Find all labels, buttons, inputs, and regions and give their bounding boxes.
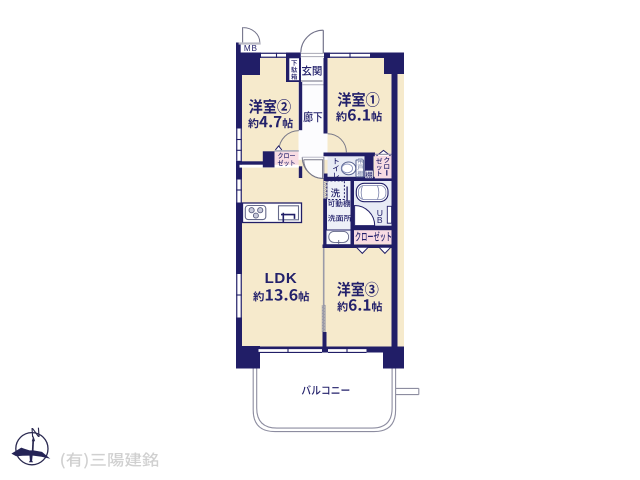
svg-text:MB: MB (244, 44, 258, 53)
svg-text:LDK: LDK (265, 270, 298, 287)
svg-text:N: N (30, 425, 41, 441)
svg-text:B: B (377, 215, 383, 225)
